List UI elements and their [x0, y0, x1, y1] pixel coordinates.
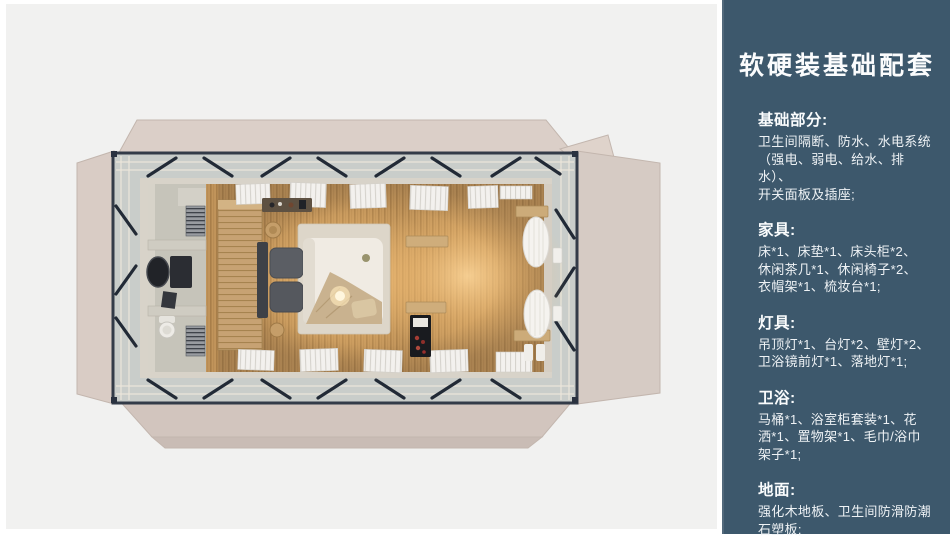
bathroom	[147, 184, 218, 372]
section-heading: 灯具:	[758, 311, 936, 333]
sidebar-title: 软硬装基础配套	[738, 46, 936, 82]
section-furniture: 家具: 床*1、床垫*1、床头柜*2、 休闲茶几*1、休闲椅子*2、 衣帽架*1…	[758, 218, 936, 296]
wardrobe	[218, 200, 262, 350]
section-body: 卫生间隔断、防水、水电系统 （强电、弱电、给水、排水）、 开关面板及插座;	[758, 133, 936, 203]
sink-basin	[147, 257, 169, 287]
section-body: 马桶*1、浴室柜套装*1、花 洒*1、置物架*1、毛巾/浴巾 架子*1;	[758, 411, 936, 464]
bathroom-partition	[148, 240, 206, 250]
plant-sprig	[362, 254, 370, 262]
towel-rack	[186, 206, 205, 236]
towel	[536, 344, 545, 361]
section-heading: 地面:	[758, 478, 936, 500]
section-body: 床*1、床垫*1、床头柜*2、 休闲茶几*1、休闲椅子*2、 衣帽架*1、梳妆台…	[758, 243, 936, 296]
section-basics: 基础部分: 卫生间隔断、防水、水电系统 （强电、弱电、给水、排水）、 开关面板及…	[758, 108, 936, 203]
section-body: 吊顶灯*1、台灯*2、壁灯*2、 卫浴镜前灯*1、落地灯*1;	[758, 336, 936, 371]
slide: 软硬装基础配套 基础部分: 卫生间隔断、防水、水电系统 （强电、弱电、给水、排水…	[0, 0, 950, 534]
wall-shelf	[406, 236, 448, 247]
section-heading: 卫浴:	[758, 386, 936, 408]
section-heading: 基础部分:	[758, 108, 936, 130]
section-heading: 家具:	[758, 218, 936, 240]
pillow	[270, 282, 303, 312]
bench	[516, 206, 548, 217]
table-lamp	[335, 291, 345, 301]
towel-rack	[186, 326, 205, 356]
vanity-cabinet	[170, 256, 192, 288]
curtain	[524, 290, 550, 338]
pillow	[270, 248, 303, 278]
floor-plan-photo	[0, 0, 722, 534]
section-body: 强化木地板、卫生间防滑防潮 石塑板;	[758, 503, 936, 538]
wall-shelf	[406, 302, 446, 313]
bathroom-partition	[148, 306, 206, 316]
section-bathroom: 卫浴: 马桶*1、浴室柜套装*1、花 洒*1、置物架*1、毛巾/浴巾 架子*1;	[758, 386, 936, 464]
wall-lamp	[553, 306, 562, 321]
headboard	[257, 242, 268, 318]
info-sidebar: 软硬装基础配套 基础部分: 卫生间隔断、防水、水电系统 （强电、弱电、给水、排水…	[722, 0, 950, 534]
section-list: 基础部分: 卫生间隔断、防水、水电系统 （强电、弱电、给水、排水）、 开关面板及…	[758, 108, 936, 538]
floor-plan-render	[0, 0, 722, 534]
towel	[524, 344, 533, 361]
headboard-shelf	[262, 198, 312, 212]
section-flooring: 地面: 强化木地板、卫生间防滑防潮 石塑板;	[758, 478, 936, 538]
wall-lamp	[553, 248, 562, 263]
shower-tray	[178, 188, 206, 206]
section-lighting: 灯具: 吊顶灯*1、台灯*2、壁灯*2、 卫浴镜前灯*1、落地灯*1;	[758, 311, 936, 371]
curtain	[523, 217, 549, 267]
